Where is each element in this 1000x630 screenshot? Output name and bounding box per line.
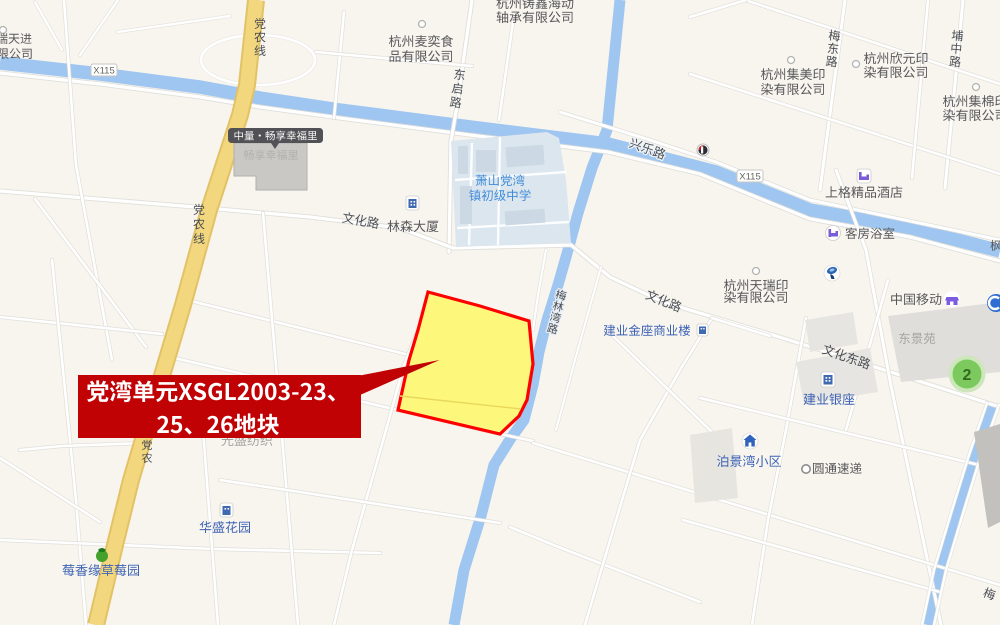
svg-text:2: 2 xyxy=(963,367,972,384)
svg-text:X115: X115 xyxy=(739,172,760,183)
svg-text:X115: X115 xyxy=(93,66,114,77)
